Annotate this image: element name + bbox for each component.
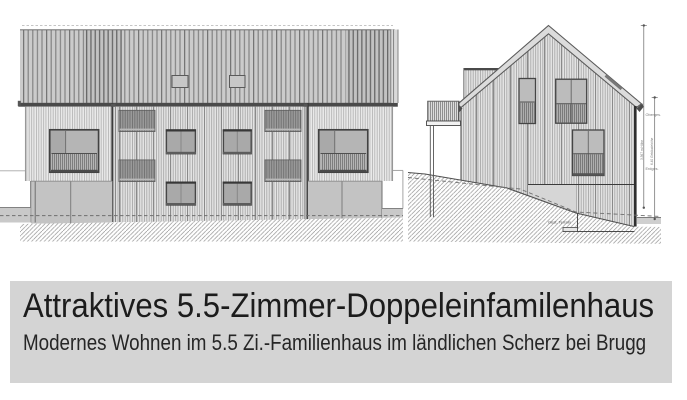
svg-text:Oberges.: Oberges. — [646, 113, 662, 117]
svg-text:Gest. Terrain: Gest. Terrain — [548, 220, 571, 225]
svg-text:Erdges.: Erdges. — [646, 167, 659, 171]
svg-text:3.367 m Höhe: 3.367 m Höhe — [640, 140, 644, 160]
svg-text:6.40 Gebäudehöhe: 6.40 Gebäudehöhe — [650, 137, 654, 165]
